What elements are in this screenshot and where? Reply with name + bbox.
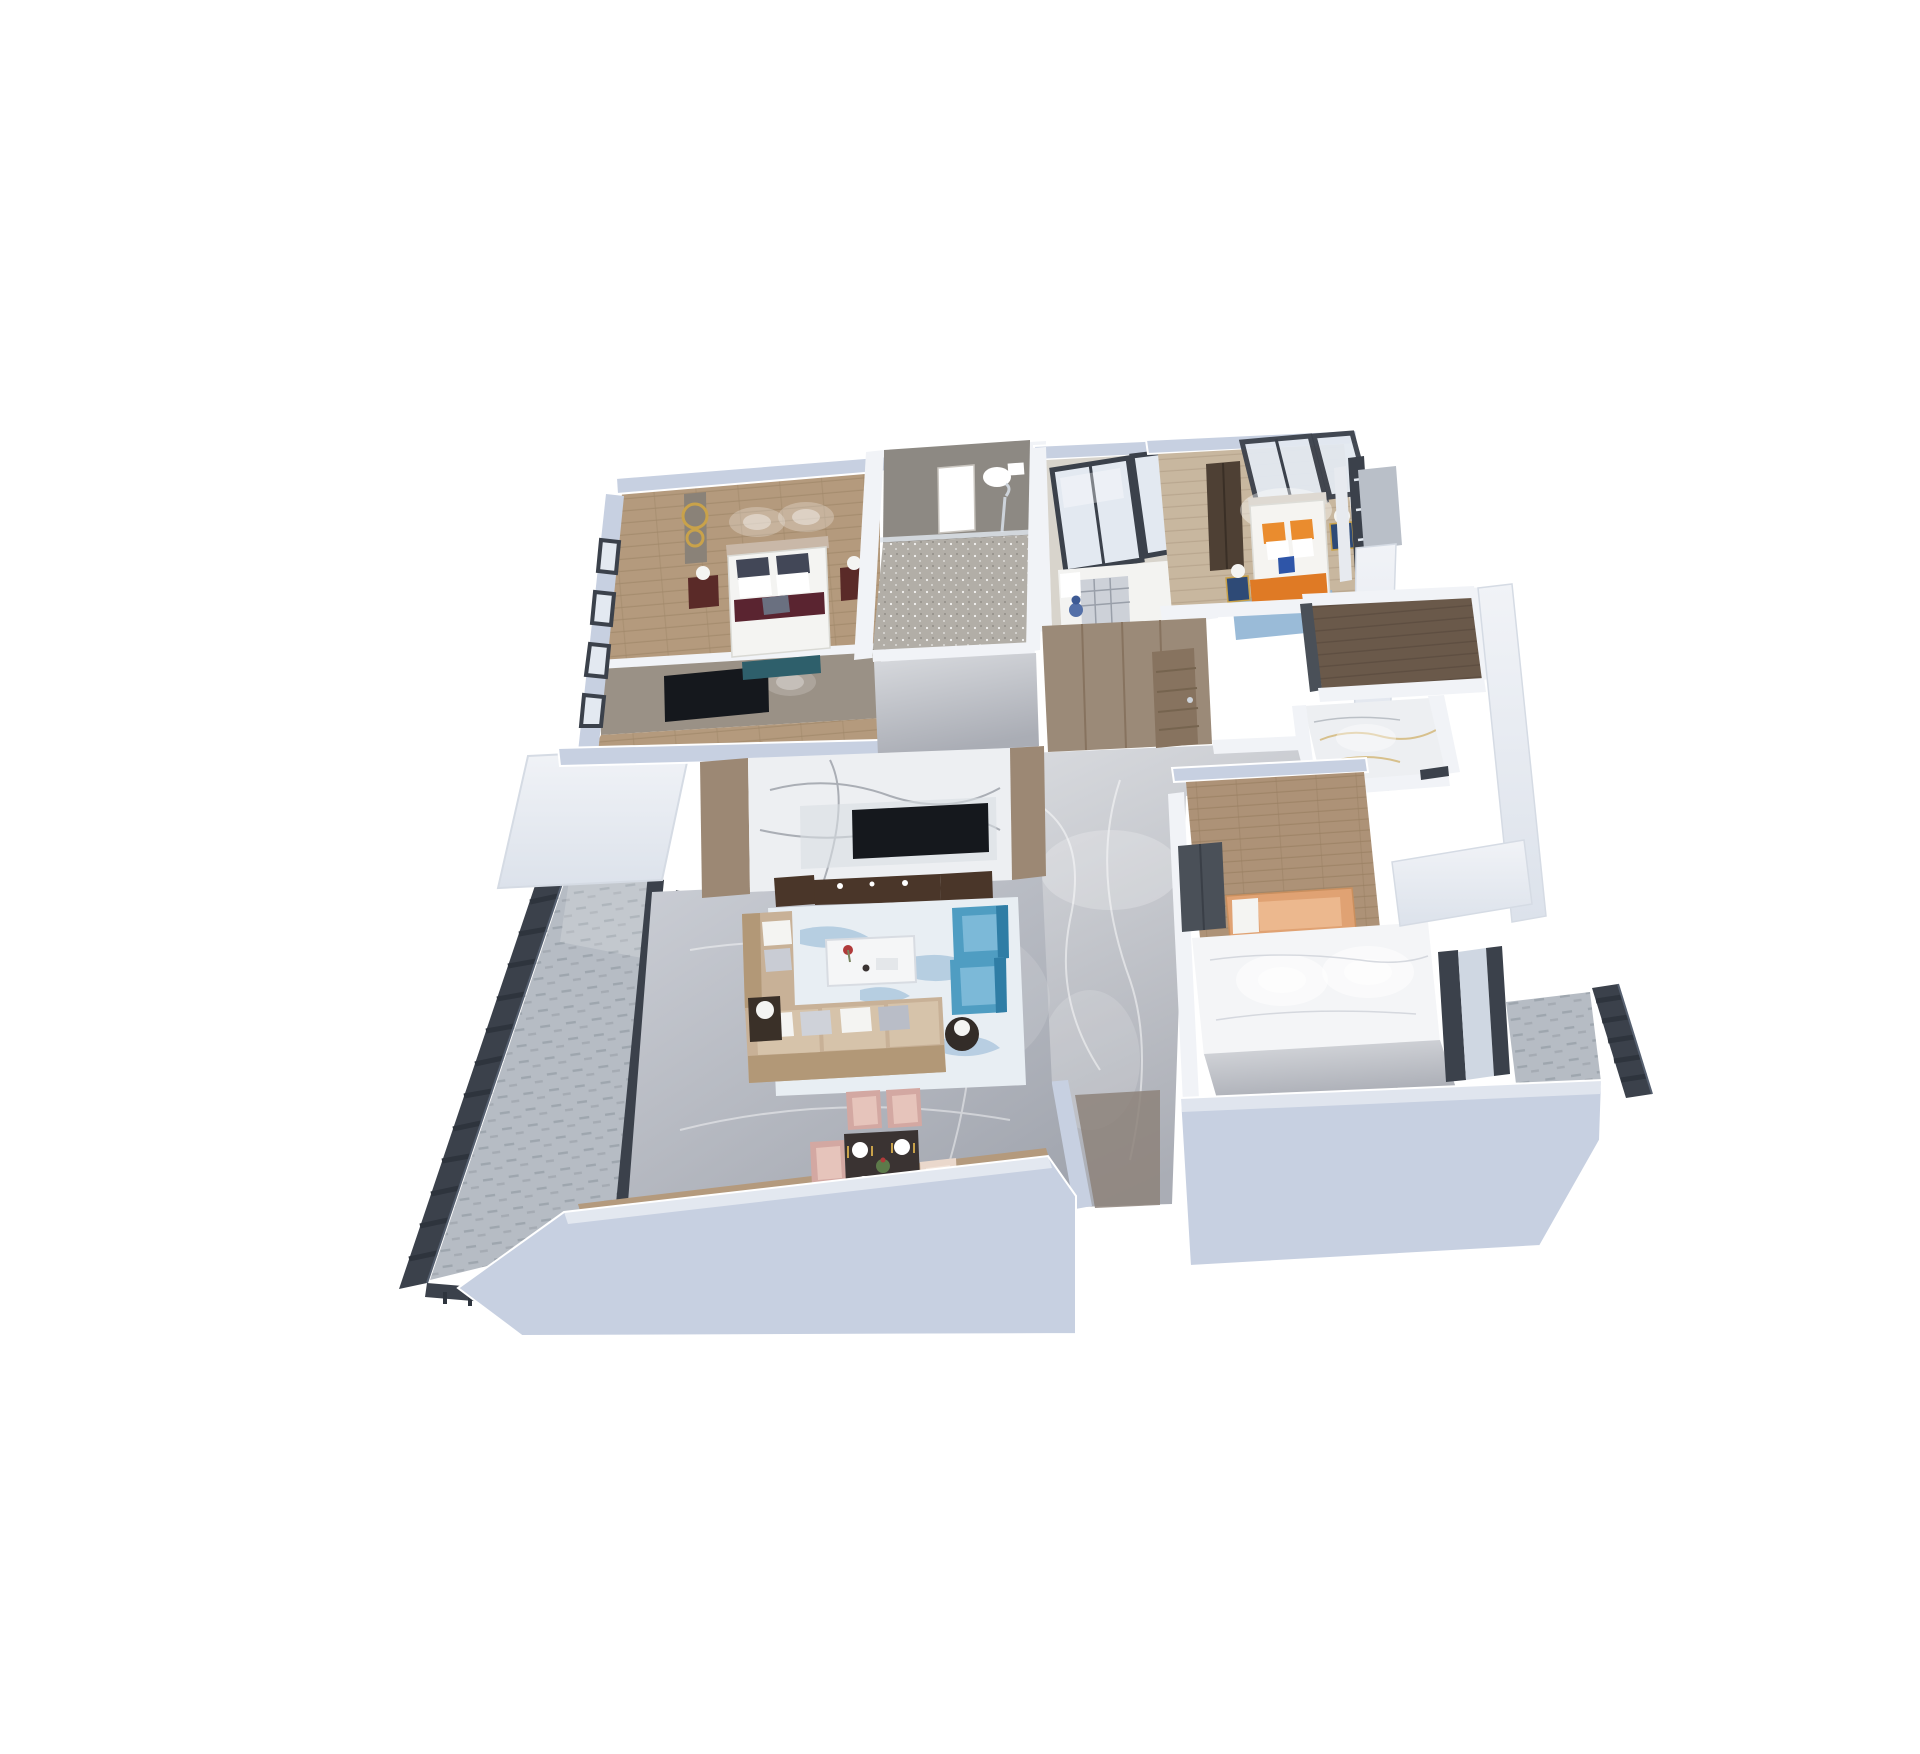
display-cabinet-right	[940, 871, 993, 903]
master-pillow	[776, 572, 810, 595]
blue-doll-head	[1072, 596, 1081, 605]
light-pool	[1040, 830, 1180, 910]
apartment-scene	[0, 0, 1920, 1754]
dining-chair	[886, 1088, 922, 1128]
door-handle	[1187, 697, 1193, 703]
master-throw-pillow	[762, 595, 790, 615]
floor	[1310, 598, 1484, 690]
pillow	[1060, 572, 1081, 598]
window	[586, 644, 609, 677]
blue-doll	[1069, 603, 1083, 617]
master-bathroom	[854, 440, 1046, 756]
window	[581, 695, 604, 726]
master-bedroom	[592, 464, 882, 752]
white-pillow	[1292, 538, 1314, 558]
table-lamp	[1231, 564, 1245, 578]
master-pillow	[738, 575, 772, 598]
toilet-tank	[1008, 462, 1025, 475]
west-exterior-wall	[498, 748, 690, 888]
display-cabinet-left	[774, 875, 816, 907]
blue-armchair	[950, 957, 1007, 1015]
tv-wall-side-panel	[700, 758, 750, 898]
tv-wall-side-panel	[1010, 746, 1046, 880]
blue-armchair	[952, 905, 1009, 961]
bathroom-corridor-floor	[874, 653, 1039, 756]
window	[592, 592, 614, 625]
vanity-sink	[938, 465, 975, 533]
plaid-blanket	[1080, 576, 1130, 626]
bathroom-floor	[872, 535, 1034, 658]
window-ledge	[1358, 466, 1402, 550]
table-lamp	[847, 556, 861, 570]
sofa-pillow	[764, 948, 792, 972]
orange-pillow	[1290, 519, 1314, 541]
walk-in-closet	[1300, 586, 1498, 702]
window	[598, 540, 619, 573]
sofa-chaise-back	[742, 913, 762, 1011]
blue-accent	[1278, 556, 1295, 574]
table-lamp	[756, 1001, 774, 1019]
living-tv	[852, 803, 989, 859]
sofa-pillow	[762, 920, 792, 946]
dining-chair	[846, 1090, 882, 1130]
tray	[876, 958, 898, 970]
coffee-table	[826, 936, 916, 986]
table-lamp	[954, 1020, 970, 1036]
light-pool	[1336, 724, 1396, 752]
table-lamp	[696, 566, 710, 580]
nightstand-left	[688, 575, 719, 609]
cup	[863, 965, 870, 972]
floor-plan-render	[0, 0, 1920, 1754]
nightstand-left	[1226, 576, 1250, 602]
